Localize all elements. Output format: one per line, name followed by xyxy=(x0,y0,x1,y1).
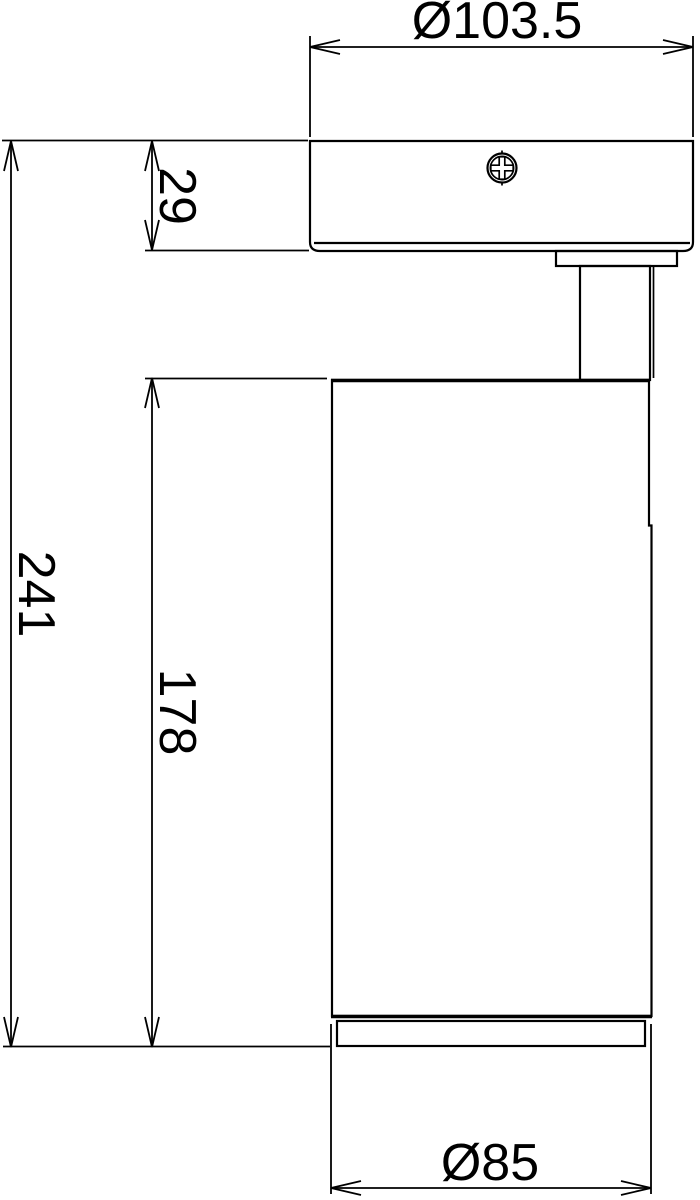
canopy-collar-outline xyxy=(556,251,677,266)
dim-overall-height: 241 xyxy=(2,141,330,1048)
technical-drawing-page: Ø103.5 29 241 178 Ø85 xyxy=(0,0,700,1200)
dimension-label-overall-height: 241 xyxy=(7,551,65,638)
screw-head-icon xyxy=(488,151,517,186)
fixture-outline xyxy=(310,141,693,1046)
dimension-label-diameter-top: Ø103.5 xyxy=(412,0,583,50)
trim-ring-outline xyxy=(337,1021,645,1046)
spotlight-dimension-drawing: Ø103.5 29 241 178 Ø85 xyxy=(0,0,700,1200)
dim-diameter-top: Ø103.5 xyxy=(310,0,693,137)
dim-body-height: 178 xyxy=(145,378,327,1047)
dimension-label-diameter-bottom: Ø85 xyxy=(441,1134,539,1192)
lamp-body-outline xyxy=(332,380,652,1016)
dim-canopy-height: 29 xyxy=(145,141,309,251)
dimension-label-body-height: 178 xyxy=(148,669,206,756)
dim-diameter-bottom: Ø85 xyxy=(331,1024,651,1195)
dimension-label-canopy-height: 29 xyxy=(148,167,206,225)
stem-outline xyxy=(580,266,650,380)
